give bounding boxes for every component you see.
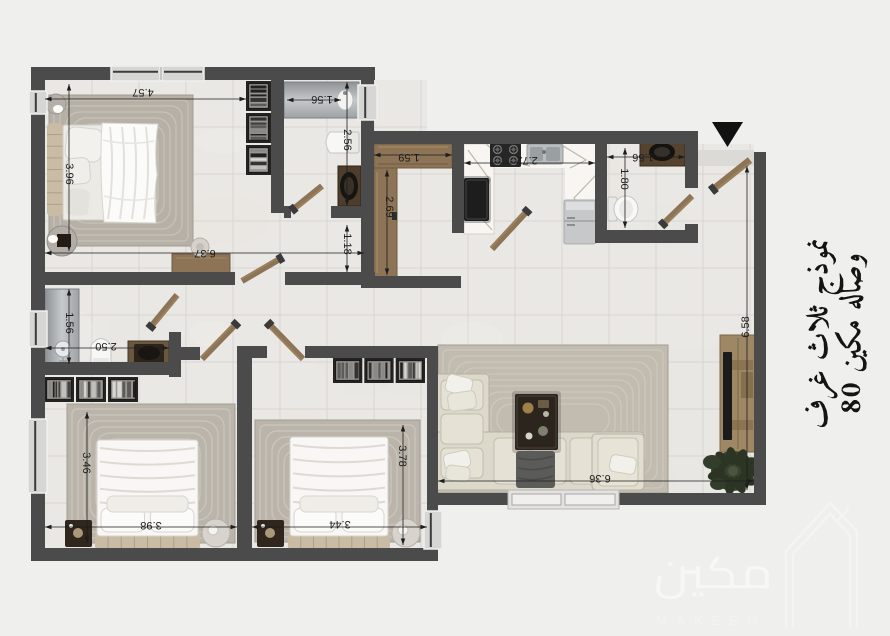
svg-text:MAKEEN: MAKEEN: [656, 613, 766, 628]
svg-text:3.78: 3.78: [396, 445, 408, 466]
svg-text:1.80: 1.80: [618, 168, 630, 189]
svg-text:3.46: 3.46: [80, 452, 92, 473]
svg-text:4.57: 4.57: [132, 86, 153, 98]
svg-text:2.72: 2.72: [516, 154, 537, 166]
svg-text:3.44: 3.44: [329, 518, 350, 530]
svg-text:6.58: 6.58: [740, 316, 752, 337]
svg-text:2.50: 2.50: [95, 340, 116, 352]
svg-text:3.98: 3.98: [140, 519, 161, 531]
svg-text:1.18: 1.18: [341, 233, 353, 254]
svg-text:2.56: 2.56: [341, 129, 353, 150]
svg-text:1.59: 1.59: [398, 151, 419, 163]
svg-text:1.56: 1.56: [63, 312, 75, 333]
svg-text:1.56: 1.56: [632, 151, 653, 163]
svg-text:1.56: 1.56: [311, 93, 332, 105]
svg-text:6.36: 6.36: [589, 472, 610, 484]
svg-text:2.69: 2.69: [383, 196, 395, 217]
svg-text:3.96: 3.96: [63, 163, 75, 184]
svg-text:6.37: 6.37: [194, 247, 215, 259]
